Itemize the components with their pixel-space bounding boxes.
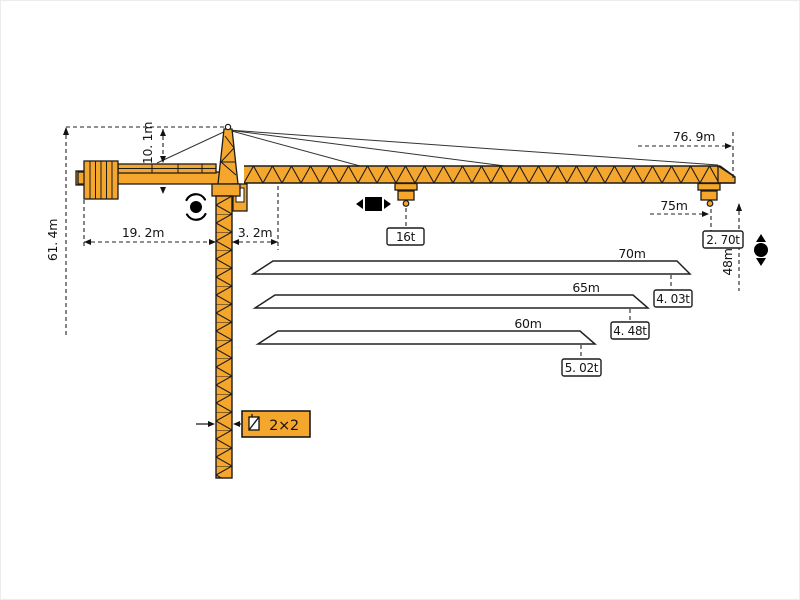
trolley-travel-icon xyxy=(356,197,391,211)
tower-mast xyxy=(216,196,232,478)
tip-load-badge: 2. 70t xyxy=(703,231,743,248)
slewing-unit xyxy=(212,184,240,196)
mast-section-badge: 2×2 xyxy=(196,411,310,437)
hook-mid xyxy=(403,201,409,207)
load-capacity-60m: 5. 02t xyxy=(565,361,599,375)
load-row-60m: 60m 5. 02t xyxy=(258,316,601,376)
hook-tip xyxy=(707,201,713,207)
tip-load-value: 2. 70t xyxy=(706,233,740,247)
dim-counter-jib: 19. 2m xyxy=(122,225,164,240)
dim-jib-root: 3. 2m xyxy=(238,225,273,240)
dim-total-height: 61. 4m xyxy=(45,219,60,261)
dim-overall-length: 76. 9m xyxy=(673,129,715,144)
load-radius-65m: 65m xyxy=(572,280,599,295)
jib xyxy=(244,166,735,183)
max-load-badge: 16t xyxy=(387,228,424,245)
mast-section-icon xyxy=(249,414,259,430)
tie-rods xyxy=(157,130,718,166)
load-radius-70m: 70m xyxy=(618,246,645,261)
dim-max-radius: 75m xyxy=(660,198,687,213)
trolley-tip xyxy=(698,184,720,207)
counter-jib xyxy=(76,161,235,199)
load-chart: 70m 4. 03t 65m 4. 48t 60m 5. 02t xyxy=(253,246,692,376)
load-row-65m: 65m 4. 48t xyxy=(255,280,649,339)
dim-head-height: 10. 1m xyxy=(140,122,155,164)
dim-under-hook: 48m xyxy=(720,248,735,275)
counterweight xyxy=(84,161,118,199)
crane-diagram-canvas: 61. 4m 10. 1m 19. 2m 3. 2m 76. 9m 75m 48… xyxy=(0,0,800,600)
load-capacity-70m: 4. 03t xyxy=(656,292,690,306)
slewing-icon xyxy=(187,194,206,220)
apex-pulley xyxy=(225,124,230,129)
max-load-value: 16t xyxy=(396,230,416,244)
hoisting-icon xyxy=(754,234,768,266)
load-radius-60m: 60m xyxy=(514,316,541,331)
crane-diagram: 61. 4m 10. 1m 19. 2m 3. 2m 76. 9m 75m 48… xyxy=(0,0,800,600)
load-capacity-65m: 4. 48t xyxy=(613,324,647,338)
mast-section-value: 2×2 xyxy=(269,418,299,434)
trolley-mid xyxy=(395,184,417,207)
